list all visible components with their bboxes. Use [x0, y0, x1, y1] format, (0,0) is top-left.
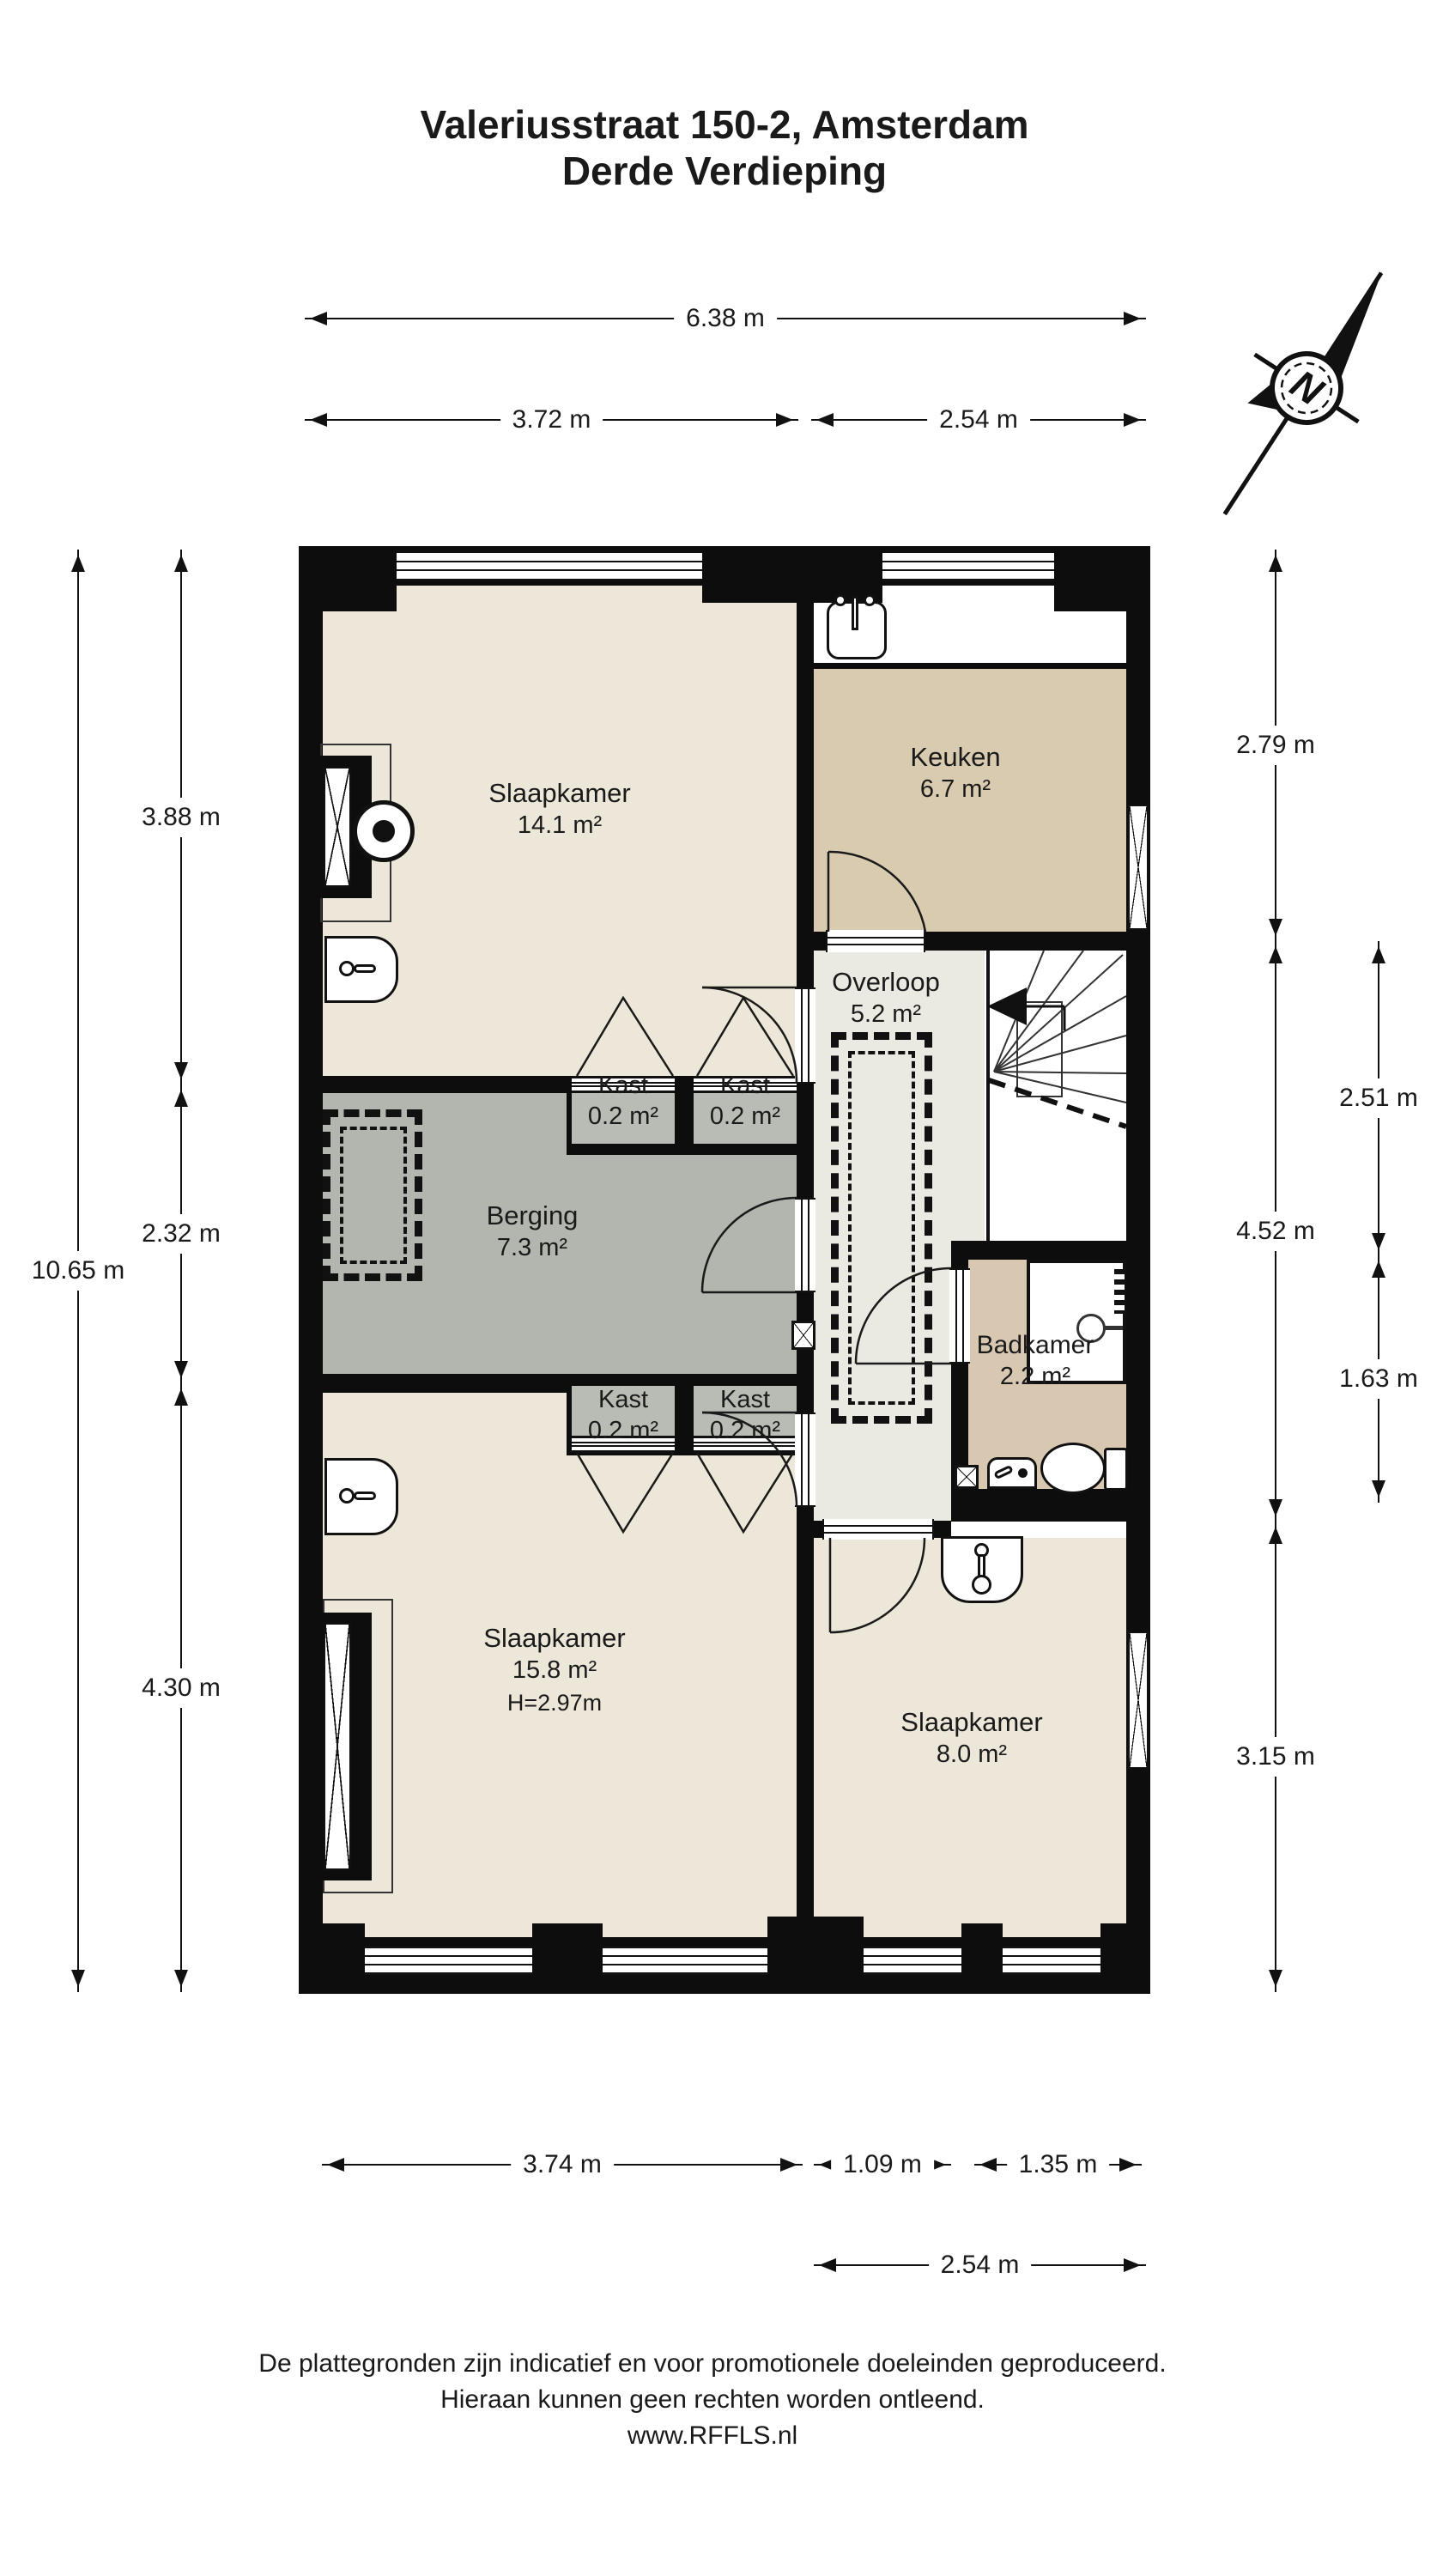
label-kast3-name: Kast — [588, 1388, 658, 1413]
wall-bottom-pier-5 — [1100, 1923, 1150, 1994]
dimension-right-outer-1: 2.51 m — [1378, 941, 1379, 1255]
wall-h1-slaapkamer1-berging — [323, 1076, 573, 1093]
label-badkamer: Badkamer 2.2 m² — [977, 1333, 1094, 1389]
stairs-direction-arrow — [987, 987, 1064, 1030]
dimension-bottom-total: 2.54 m — [814, 2264, 1146, 2266]
label-slaapkamer1: Slaapkamer 14.1 m² — [488, 780, 630, 838]
label-kast1-name: Kast — [588, 1073, 658, 1098]
door-opening-badkamer — [949, 1268, 970, 1364]
window-top-right — [882, 550, 1054, 581]
stairs-balustrade — [986, 951, 990, 1241]
label-badkamer-name: Badkamer — [977, 1333, 1094, 1358]
chimney-duct-icon — [324, 767, 351, 887]
radiator-marker-berging — [791, 1321, 815, 1350]
dimension-bottom-3: 1.35 m — [974, 2164, 1142, 2166]
label-berging-name: Berging — [487, 1202, 579, 1229]
label-kast3: Kast 0.2 m² — [588, 1388, 658, 1443]
floorplan-page: Valeriusstraat 150-2, Amsterdam Derde Ve… — [0, 0, 1449, 2576]
radiator-slaapkamer2 — [324, 1623, 351, 1870]
door-opening-slaapkamer2 — [795, 1413, 815, 1507]
label-kast1: Kast 0.2 m² — [588, 1073, 658, 1129]
wall-bottom-pier-2 — [532, 1923, 603, 1994]
radiator-marker-badkamer — [955, 1465, 979, 1489]
label-slaapkamer2-height: H=2.97m — [483, 1692, 625, 1715]
footer-disclaimer-1: De plattegronden zijn indicatief en voor… — [258, 2349, 1166, 2379]
wall-top-pier — [702, 546, 882, 603]
dimension-left-1-label: 3.88 m — [133, 798, 229, 837]
dimension-right-outer-1-label: 2.51 m — [1331, 1078, 1427, 1118]
window-top-left — [397, 550, 702, 581]
label-slaapkamer2-area: 15.8 m² — [483, 1658, 625, 1683]
door-opening-slaapkamer1 — [795, 987, 815, 1084]
dimension-left-total: 10.65 m — [77, 550, 79, 1992]
dimension-bottom-3-label: 1.35 m — [1007, 2150, 1110, 2179]
page-title-address: Valeriusstraat 150-2, Amsterdam — [420, 101, 1028, 148]
label-berging-area: 7.3 m² — [487, 1236, 579, 1261]
wall-stairs-bottom — [951, 1241, 1126, 1260]
dimension-right-outer-2: 1.63 m — [1378, 1255, 1379, 1503]
dimension-top-total-label: 6.38 m — [674, 304, 777, 333]
dimension-left-3: 4.30 m — [180, 1383, 182, 1992]
label-kast4: Kast 0.2 m² — [710, 1388, 780, 1443]
label-kast1-area: 0.2 m² — [588, 1104, 658, 1129]
wall-bottom-pier-3 — [767, 1917, 864, 1994]
washbasin2-tap-stem — [354, 1492, 376, 1500]
dimension-right-3: 3.15 m — [1275, 1522, 1276, 1992]
wall-h2-berging-slaapkamer2 — [323, 1374, 573, 1393]
dimension-left-total-label: 10.65 m — [23, 1251, 133, 1291]
footer-disclaimer-2: Hieraan kunnen geen rechten worden ontle… — [440, 2385, 985, 2415]
label-overloop: Overloop 5.2 m² — [832, 969, 940, 1027]
room-berging-floor-right — [567, 1155, 797, 1374]
label-kast2: Kast 0.2 m² — [710, 1073, 780, 1129]
washbasin2-tap-icon — [339, 1488, 355, 1504]
compass-north-icon: N — [1173, 238, 1434, 548]
label-keuken-area: 6.7 m² — [910, 777, 1000, 802]
dimension-right-3-label: 3.15 m — [1228, 1737, 1324, 1777]
skylight-berging-inner — [340, 1127, 407, 1264]
washbasin3-tap-bottom — [972, 1575, 991, 1595]
dimension-right-2: 4.52 m — [1275, 941, 1276, 1522]
compass-north-label: N — [1282, 361, 1331, 414]
label-slaapkamer2-name: Slaapkamer — [483, 1625, 625, 1651]
dimension-top-left: 3.72 m — [305, 419, 798, 421]
wall-top-corner-right — [1054, 546, 1150, 611]
label-badkamer-area: 2.2 m² — [977, 1364, 1094, 1389]
dimension-bottom-1-label: 3.74 m — [511, 2150, 614, 2179]
wall-bottom-pier-4 — [961, 1923, 1003, 1994]
label-kast3-area: 0.2 m² — [588, 1419, 658, 1443]
footer-website: www.RFFLS.nl — [627, 2421, 797, 2451]
label-slaapkamer1-name: Slaapkamer — [488, 780, 630, 806]
dimension-bottom-2: 1.09 m — [814, 2164, 951, 2166]
label-slaapkamer3-area: 8.0 m² — [900, 1742, 1042, 1767]
badkamer-basin-drain-dot — [1018, 1468, 1028, 1478]
dimension-right-1: 2.79 m — [1275, 550, 1276, 941]
dimension-top-right-label: 2.54 m — [927, 405, 1030, 434]
dimension-bottom-2-label: 1.09 m — [831, 2150, 934, 2179]
window-bottom-1 — [365, 1946, 532, 1975]
dimension-left-2-label: 2.32 m — [133, 1214, 229, 1254]
dimension-right-outer-2-label: 1.63 m — [1331, 1359, 1427, 1399]
dimension-bottom-total-label: 2.54 m — [929, 2251, 1032, 2280]
label-slaapkamer1-area: 14.1 m² — [488, 813, 630, 838]
label-kast4-area: 0.2 m² — [710, 1419, 780, 1443]
label-keuken-name: Keuken — [910, 744, 1000, 770]
label-kast2-area: 0.2 m² — [710, 1104, 780, 1129]
toilet-tank — [1104, 1448, 1128, 1491]
page-title-floor: Derde Verdieping — [562, 148, 887, 194]
keuken-counter-edge — [814, 663, 1126, 669]
dimension-right-1-label: 2.79 m — [1228, 726, 1324, 765]
label-slaapkamer3: Slaapkamer 8.0 m² — [900, 1709, 1042, 1767]
skylight-overloop-inner — [848, 1051, 915, 1405]
label-kast4-name: Kast — [710, 1388, 780, 1413]
label-slaapkamer2: Slaapkamer 15.8 m² H=2.97m — [483, 1625, 625, 1715]
flue-pipe-dot — [373, 820, 395, 842]
toilet-bowl — [1040, 1443, 1106, 1494]
door-opening-keuken — [826, 930, 925, 952]
label-overloop-area: 5.2 m² — [832, 1002, 940, 1027]
stairs-headroom-dashed — [989, 1080, 1126, 1127]
wall-right — [1126, 546, 1150, 1994]
dimension-top-right: 2.54 m — [811, 419, 1146, 421]
wall-badkamer-bottom — [951, 1489, 1126, 1522]
window-bottom-2 — [603, 1946, 767, 1975]
radiator-slaapkamer3 — [1128, 1631, 1149, 1769]
window-bottom-3 — [864, 1946, 961, 1975]
door-opening-berging — [795, 1198, 815, 1292]
dimension-top-total: 6.38 m — [305, 318, 1146, 319]
washbasin1-tap-icon — [339, 961, 355, 976]
washbasin1-tap-stem — [354, 964, 376, 973]
label-berging: Berging 7.3 m² — [487, 1202, 579, 1261]
label-kast2-name: Kast — [710, 1073, 780, 1098]
dimension-left-1: 3.88 m — [180, 550, 182, 1084]
dimension-left-3-label: 4.30 m — [133, 1668, 229, 1708]
dimension-left-2: 2.32 m — [180, 1084, 182, 1383]
shower-fittings-icon — [1114, 1269, 1125, 1314]
radiator-keuken — [1128, 805, 1149, 930]
stairs — [994, 951, 1126, 1103]
door-opening-slaapkamer3 — [822, 1519, 934, 1540]
dimension-bottom-1: 3.74 m — [322, 2164, 803, 2166]
label-slaapkamer3-name: Slaapkamer — [900, 1709, 1042, 1735]
kitchen-sink-faucet — [852, 596, 858, 630]
wall-top-corner-left — [299, 546, 397, 611]
shower-arm-icon — [1104, 1326, 1123, 1330]
window-bottom-4 — [1003, 1946, 1100, 1975]
kitchen-sink-tap-right — [864, 594, 876, 606]
dimension-right-2-label: 4.52 m — [1228, 1212, 1324, 1251]
dimension-top-left-label: 3.72 m — [500, 405, 603, 434]
label-keuken: Keuken 6.7 m² — [910, 744, 1000, 802]
kitchen-sink-tap-left — [834, 594, 846, 606]
label-overloop-name: Overloop — [832, 969, 940, 995]
wall-bottom-pier-1 — [299, 1923, 365, 1994]
